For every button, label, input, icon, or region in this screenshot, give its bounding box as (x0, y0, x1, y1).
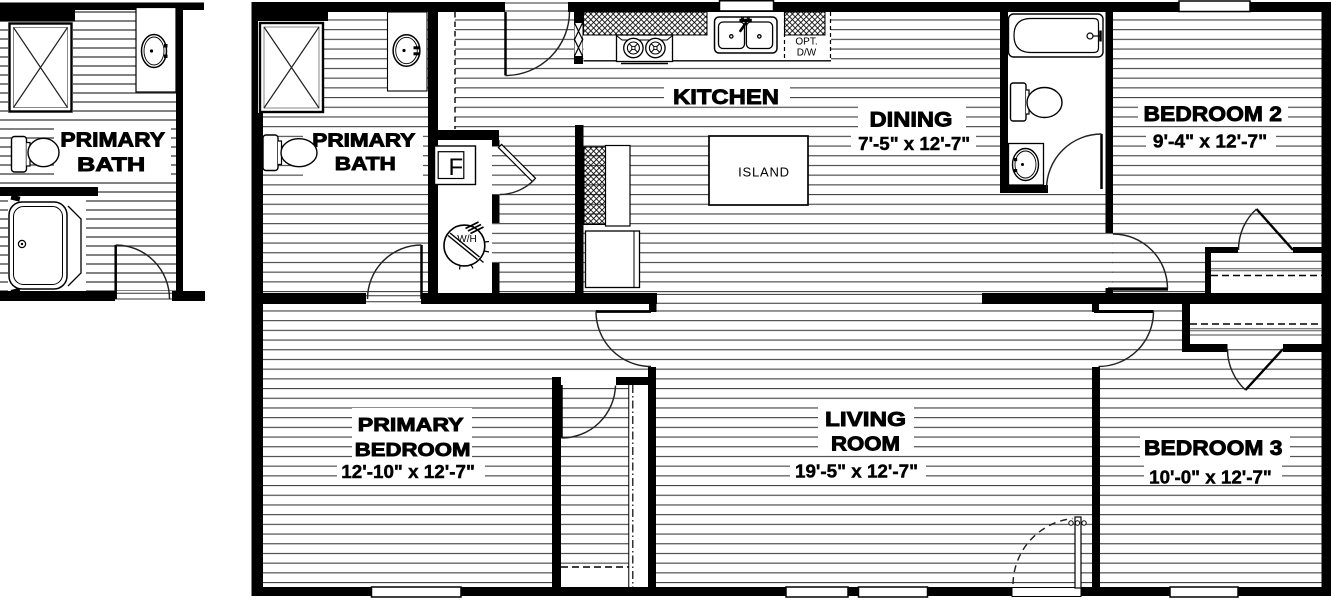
svg-text:BEDROOM 2: BEDROOM 2 (1144, 102, 1283, 126)
svg-text:LIVING: LIVING (825, 409, 906, 431)
svg-text:12'-10" x 12'-7": 12'-10" x 12'-7" (341, 461, 475, 482)
svg-text:19'-5" x 12'-7": 19'-5" x 12'-7" (795, 461, 918, 482)
svg-text:7'-5" x 12'-7": 7'-5" x 12'-7" (858, 133, 970, 154)
svg-text:OPT.: OPT. (795, 37, 817, 48)
svg-text:ROOM: ROOM (831, 434, 900, 456)
svg-text:BEDROOM: BEDROOM (355, 439, 471, 460)
svg-text:W/H: W/H (457, 234, 476, 245)
svg-text:PRIMARY: PRIMARY (60, 129, 165, 152)
svg-text:9'-4" x 12'-7": 9'-4" x 12'-7" (1153, 132, 1267, 152)
svg-text:F: F (448, 154, 463, 181)
svg-text:10'-0" x 12'-7": 10'-0" x 12'-7" (1149, 467, 1272, 488)
svg-text:ISLAND: ISLAND (738, 165, 790, 180)
svg-text:PRIMARY: PRIMARY (312, 131, 415, 151)
svg-text:DINING: DINING (870, 108, 953, 132)
svg-text:BEDROOM 3: BEDROOM 3 (1144, 436, 1283, 460)
svg-text:D/W: D/W (797, 48, 817, 59)
svg-text:BATH: BATH (77, 155, 145, 176)
svg-text:KITCHEN: KITCHEN (673, 85, 779, 109)
svg-text:PRIMARY: PRIMARY (358, 414, 465, 435)
svg-text:BATH: BATH (335, 153, 396, 174)
